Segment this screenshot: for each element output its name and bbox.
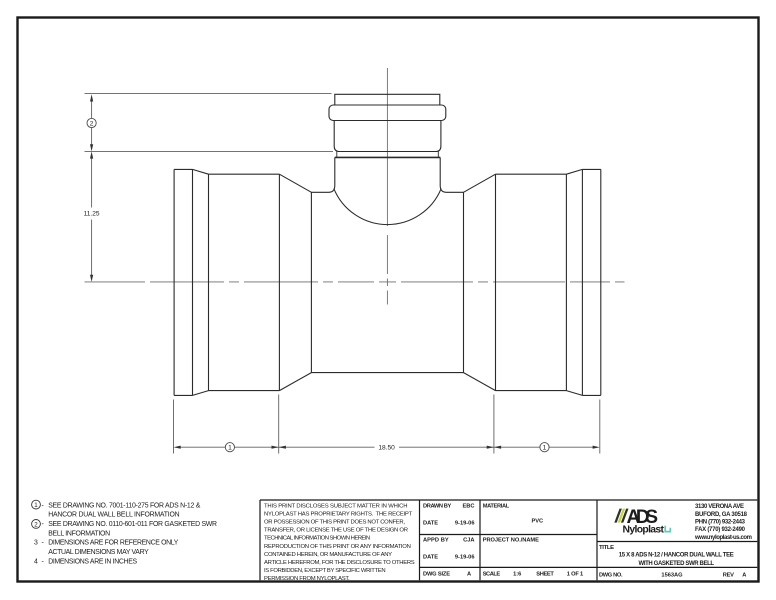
svg-text:DIMENSIONS ARE FOR REFERENCE O: DIMENSIONS ARE FOR REFERENCE ONLY: [48, 540, 179, 547]
svg-text:REPRODUCTION OF THIS PRINT OR: REPRODUCTION OF THIS PRINT OR ANY INFORM…: [264, 544, 411, 550]
svg-text:9-19-06: 9-19-06: [455, 521, 475, 527]
svg-text:11.25: 11.25: [84, 211, 100, 218]
svg-text:-: -: [42, 558, 44, 565]
svg-text:WITH GASKETED SWR BELL: WITH GASKETED SWR BELL: [639, 561, 715, 567]
svg-text:SEE DRAWING NO. 7001-110-275 F: SEE DRAWING NO. 7001-110-275 FOR ADS N-1…: [48, 502, 200, 509]
svg-text:NYLOPLAST HAS PROPRIETARY RIGH: NYLOPLAST HAS PROPRIETARY RIGHTS. THE RE…: [264, 511, 413, 517]
svg-text:3: 3: [34, 540, 38, 547]
svg-text:CJA: CJA: [463, 538, 474, 544]
svg-text:TRANSFER, OR LICENSE THE USE O: TRANSFER, OR LICENSE THE USE OF THE DESI…: [264, 528, 408, 534]
svg-text:A: A: [742, 573, 746, 579]
svg-text:OR POSSESSION OF THIS PRINT DO: OR POSSESSION OF THIS PRINT DOES NOT CON…: [264, 520, 405, 526]
svg-text:ACTUAL DIMENSIONS MAY VARY: ACTUAL DIMENSIONS MAY VARY: [48, 549, 149, 556]
svg-text:www.nyloplast-us.com: www.nyloplast-us.com: [694, 535, 752, 541]
svg-text:REV: REV: [723, 573, 734, 579]
svg-text:IS FORBIDDEN, EXCEPT BY SPECIF: IS FORBIDDEN, EXCEPT BY SPECIFIC WRITTEN: [264, 568, 386, 574]
svg-text:A: A: [467, 572, 471, 578]
svg-text:1: 1: [543, 445, 547, 452]
svg-text:Nyloplast: Nyloplast: [623, 524, 665, 535]
svg-text:3130 VERONA AVE: 3130 VERONA AVE: [695, 504, 744, 510]
svg-text:4: 4: [34, 558, 38, 565]
svg-text:SHEET: SHEET: [536, 572, 554, 578]
svg-text:1: 1: [34, 502, 38, 509]
svg-text:1 OF 1: 1 OF 1: [567, 572, 584, 578]
svg-text:APPD BY: APPD BY: [423, 538, 449, 544]
svg-text:CONTAINED HEREIN, OR MANUFACTU: CONTAINED HEREIN, OR MANUFACTURE OF ANY: [264, 552, 392, 558]
svg-text:2: 2: [34, 521, 38, 528]
svg-text:FAX (770) 932-2490: FAX (770) 932-2490: [695, 527, 746, 533]
svg-text:TECHNICAL INFORMATION SHOWN HE: TECHNICAL INFORMATION SHOWN HEREIN: [264, 536, 370, 542]
svg-text:1: 1: [228, 445, 232, 452]
svg-text:SEE DRAWING NO. 0110-601-011 F: SEE DRAWING NO. 0110-601-011 FOR GASKETE…: [48, 521, 217, 528]
svg-text:BUFORD, GA 30518: BUFORD, GA 30518: [695, 512, 748, 518]
svg-text:-: -: [42, 521, 44, 528]
svg-text:DIMENSIONS ARE IN INCHES: DIMENSIONS ARE IN INCHES: [48, 558, 137, 565]
svg-text:BELL INFORMATION: BELL INFORMATION: [48, 531, 110, 538]
svg-text:TITLE: TITLE: [599, 545, 614, 551]
svg-text:PVC: PVC: [531, 519, 543, 525]
svg-text:DRAWN BY: DRAWN BY: [423, 504, 452, 510]
svg-text:-: -: [42, 540, 44, 547]
svg-text:15 X 8 ADS N-12 / HANCOR DUAL: 15 X 8 ADS N-12 / HANCOR DUAL WALL TEE: [619, 552, 734, 558]
svg-text:18.50: 18.50: [378, 445, 395, 452]
svg-text:DATE: DATE: [423, 521, 438, 527]
svg-text:PERMISSION FROM NYLOPLAST.: PERMISSION FROM NYLOPLAST.: [264, 576, 350, 582]
svg-text:MATERIAL: MATERIAL: [483, 504, 510, 510]
svg-text:DWG NO.: DWG NO.: [599, 573, 623, 579]
svg-text:PROJECT NO./NAME: PROJECT NO./NAME: [483, 538, 539, 544]
svg-text:DATE: DATE: [423, 555, 438, 561]
svg-text:HANCOR DUAL WALL BELL INFORMAT: HANCOR DUAL WALL BELL INFORMATION: [48, 512, 179, 519]
svg-text:ARTICLE HEREFROM, FOR THE DISC: ARTICLE HEREFROM, FOR THE DISCLOSURE TO …: [264, 560, 415, 566]
svg-text:2: 2: [90, 120, 94, 127]
svg-text:SCALE: SCALE: [483, 572, 501, 578]
svg-text:PHN (770) 932-2443: PHN (770) 932-2443: [695, 519, 746, 525]
svg-text:-: -: [42, 502, 44, 509]
svg-text:1563AG: 1563AG: [661, 573, 683, 579]
svg-text:1:6: 1:6: [513, 572, 521, 578]
svg-text:EBC: EBC: [462, 504, 474, 510]
svg-text:THIS PRINT DISCLOSES SUBJECT M: THIS PRINT DISCLOSES SUBJECT MATTER IN W…: [264, 503, 408, 509]
svg-text:9-19-06: 9-19-06: [455, 555, 475, 561]
svg-text:DWG SIZE: DWG SIZE: [423, 572, 450, 578]
